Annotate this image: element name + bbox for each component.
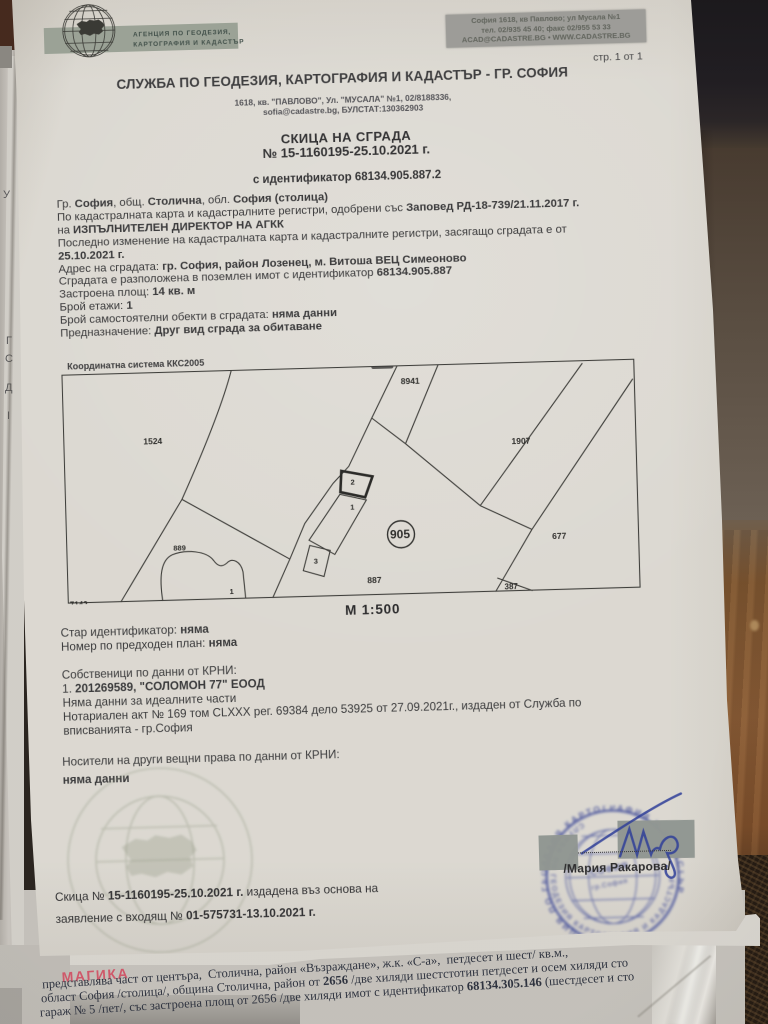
svg-text:905: 905 (390, 527, 411, 542)
svg-text:1524: 1524 (143, 436, 162, 447)
svg-text:2: 2 (350, 478, 354, 487)
svg-text:887: 887 (367, 575, 382, 585)
svg-text:1: 1 (229, 587, 233, 596)
svg-text:1: 1 (350, 503, 354, 512)
svg-text:889: 889 (173, 543, 186, 552)
svg-text:387: 387 (504, 582, 518, 591)
svg-text:7142: 7142 (70, 600, 89, 605)
svg-text:8941: 8941 (401, 376, 420, 387)
svg-text:1907: 1907 (511, 436, 530, 447)
svg-text:677: 677 (552, 531, 567, 541)
svg-text:3: 3 (314, 557, 318, 566)
